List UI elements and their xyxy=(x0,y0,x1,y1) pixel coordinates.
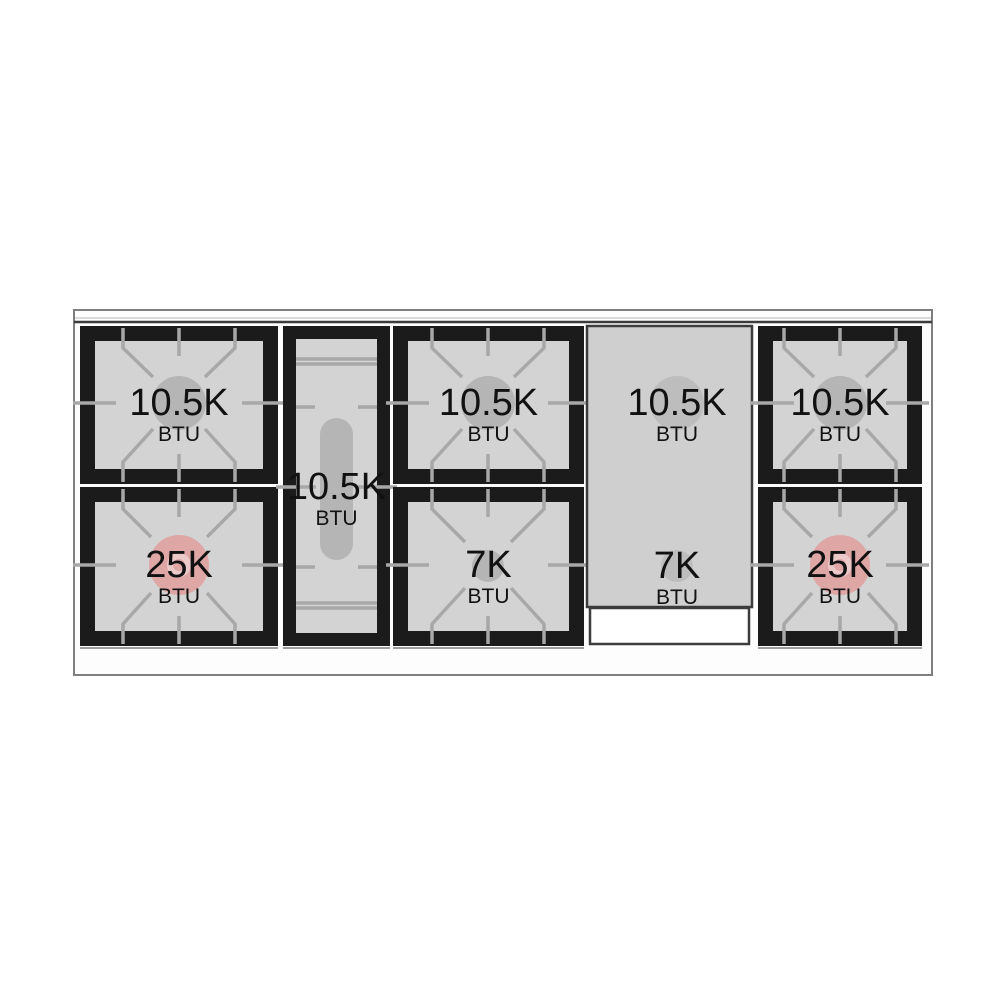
griddle-burner-cap-rear xyxy=(650,376,704,430)
burner-cap-rear-right xyxy=(813,376,867,430)
burner-cap-front-center xyxy=(472,550,504,582)
griddle-handle xyxy=(590,608,749,644)
oval-burner-cap xyxy=(320,418,353,560)
burner-grate-rear-right xyxy=(751,326,929,484)
oval-burner-grate-center xyxy=(276,326,397,646)
burner-grate-front-center xyxy=(386,487,591,646)
cooktop-diagram-svg xyxy=(0,0,1000,1000)
burner-cap-rear-left xyxy=(152,376,206,430)
burner-cap-rear-center xyxy=(461,376,515,430)
griddle-panel xyxy=(587,326,752,644)
burner-grate-front-right xyxy=(751,487,929,646)
burner-grate-rear-center xyxy=(386,326,591,484)
burner-grate-rear-left xyxy=(73,326,285,484)
griddle-burner-cap-front xyxy=(661,550,693,582)
burner-grate-front-left xyxy=(73,487,285,646)
cooktop-diagram-page: 10.5K BTU 25K BTU 10.5K BTU 10.5K BTU 7K… xyxy=(0,0,1000,1000)
